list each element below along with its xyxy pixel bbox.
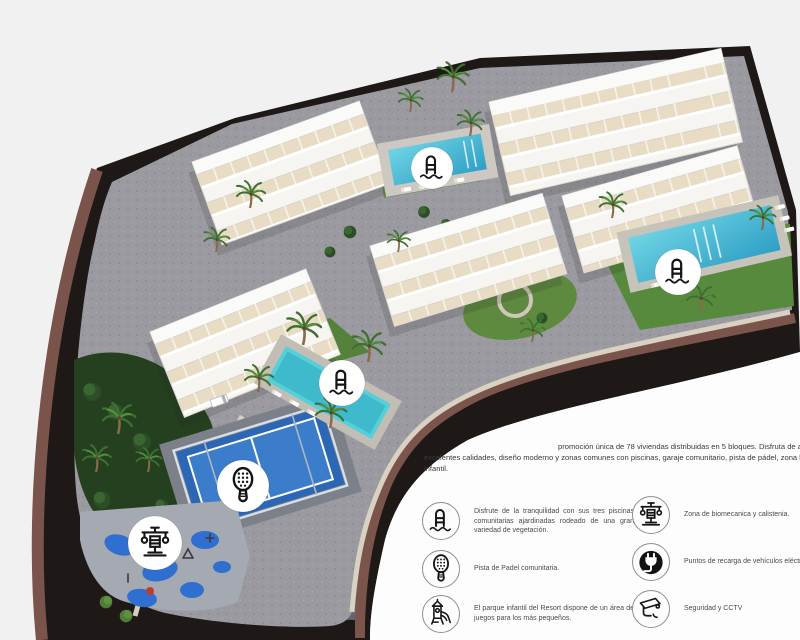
intro-paragraph: promoción única de 78 viviendas distribu…: [424, 441, 800, 475]
cctv-icon: [632, 590, 670, 628]
legend-item-calisthenics: Zona de biomecanica y calistenia.: [632, 496, 800, 534]
intro-line-1: promoción única de 78 viviendas distribu…: [424, 441, 800, 452]
intro-line-2: excelentes calidades, diseño moderno y z…: [424, 452, 800, 463]
legend-text-padel: Pista de Padel comunitaria.: [474, 564, 634, 574]
calisthenics-icon: [632, 496, 670, 534]
legend-item-padel: Pista de Padel comunitaria.: [422, 550, 634, 588]
legend-left-column: Disfrute de la tranquilidad con sus tres…: [422, 500, 634, 640]
calisthenics-marker: [128, 516, 182, 570]
padel-icon: [422, 550, 460, 588]
legend-text-pools: Disfrute de la tranquilidad con sus tres…: [474, 507, 634, 536]
pool-icon: [422, 502, 460, 540]
ev-charger-icon: [632, 543, 670, 581]
padel-marker: [217, 460, 269, 512]
legend-text-ev-charger: Puntos de recarga de vehículos eléctrico…: [684, 557, 800, 567]
legend-item-ev-charger: Puntos de recarga de vehículos eléctrico…: [632, 543, 800, 581]
pool-marker-right: [655, 249, 701, 295]
legend-item-pools: Disfrute de la tranquilidad con sus tres…: [422, 500, 634, 543]
brochure-page: promoción única de 78 viviendas distribu…: [0, 0, 800, 640]
legend-item-cctv: Seguridad y CCTV: [632, 590, 800, 628]
legend-text-cctv: Seguridad y CCTV: [684, 604, 800, 614]
intro-line-3: infantil.: [424, 463, 800, 474]
legend-text-calisthenics: Zona de biomecanica y calistenia.: [684, 510, 800, 520]
legend-right-column: Zona de biomecanica y calistenia. Puntos…: [632, 496, 800, 637]
legend-item-playground: El parque infantil del Resort dispone de…: [422, 595, 634, 633]
pool-marker-top: [411, 147, 453, 189]
playground-icon: [422, 595, 460, 633]
legend-text-playground: El parque infantil del Resort dispone de…: [474, 604, 634, 623]
pool-marker-left: [319, 360, 365, 406]
